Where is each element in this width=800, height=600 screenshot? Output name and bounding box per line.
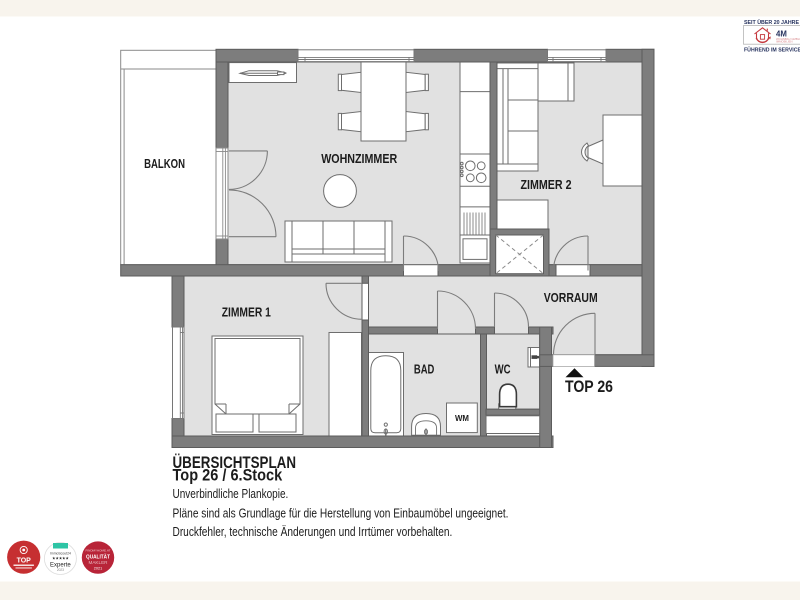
svg-text:Unverbindliche Plankopie.: Unverbindliche Plankopie. bbox=[173, 486, 289, 501]
svg-text:FINDMYHOME.AT: FINDMYHOME.AT bbox=[86, 549, 111, 553]
svg-text:MAKLER: MAKLER bbox=[89, 560, 108, 565]
svg-text:WC: WC bbox=[495, 362, 511, 376]
svg-text:WOHNZIMMER: WOHNZIMMER bbox=[321, 152, 397, 166]
svg-text:TOP 26: TOP 26 bbox=[565, 378, 613, 396]
svg-text:IMMOBILIEN: IMMOBILIEN bbox=[776, 40, 792, 44]
svg-text:★★★★★: ★★★★★ bbox=[52, 556, 69, 561]
svg-text:Druckfehler, technische Änderu: Druckfehler, technische Änderungen und I… bbox=[173, 524, 453, 539]
svg-text:2023: 2023 bbox=[57, 568, 64, 572]
svg-text:ZIMMER 2: ZIMMER 2 bbox=[521, 178, 572, 192]
svg-text:VORRAUM: VORRAUM bbox=[544, 291, 598, 305]
svg-text:SEIT ÜBER 20 JAHRE: SEIT ÜBER 20 JAHRE bbox=[744, 19, 799, 26]
svg-text:Pläne sind als Grundlage für d: Pläne sind als Grundlage für die Herstel… bbox=[173, 506, 509, 521]
svg-text:TOP: TOP bbox=[17, 558, 32, 565]
svg-text:BALKON: BALKON bbox=[144, 157, 185, 171]
svg-text:ZIMMER 1: ZIMMER 1 bbox=[222, 306, 271, 320]
svg-text:FÜHREND IM SERVICE: FÜHREND IM SERVICE bbox=[744, 46, 800, 53]
svg-text:WM: WM bbox=[455, 414, 469, 423]
svg-text:2021: 2021 bbox=[94, 567, 102, 571]
svg-text:BAD: BAD bbox=[414, 362, 435, 376]
svg-text:Top 26 / 6.Stock: Top 26 / 6.Stock bbox=[173, 466, 283, 485]
